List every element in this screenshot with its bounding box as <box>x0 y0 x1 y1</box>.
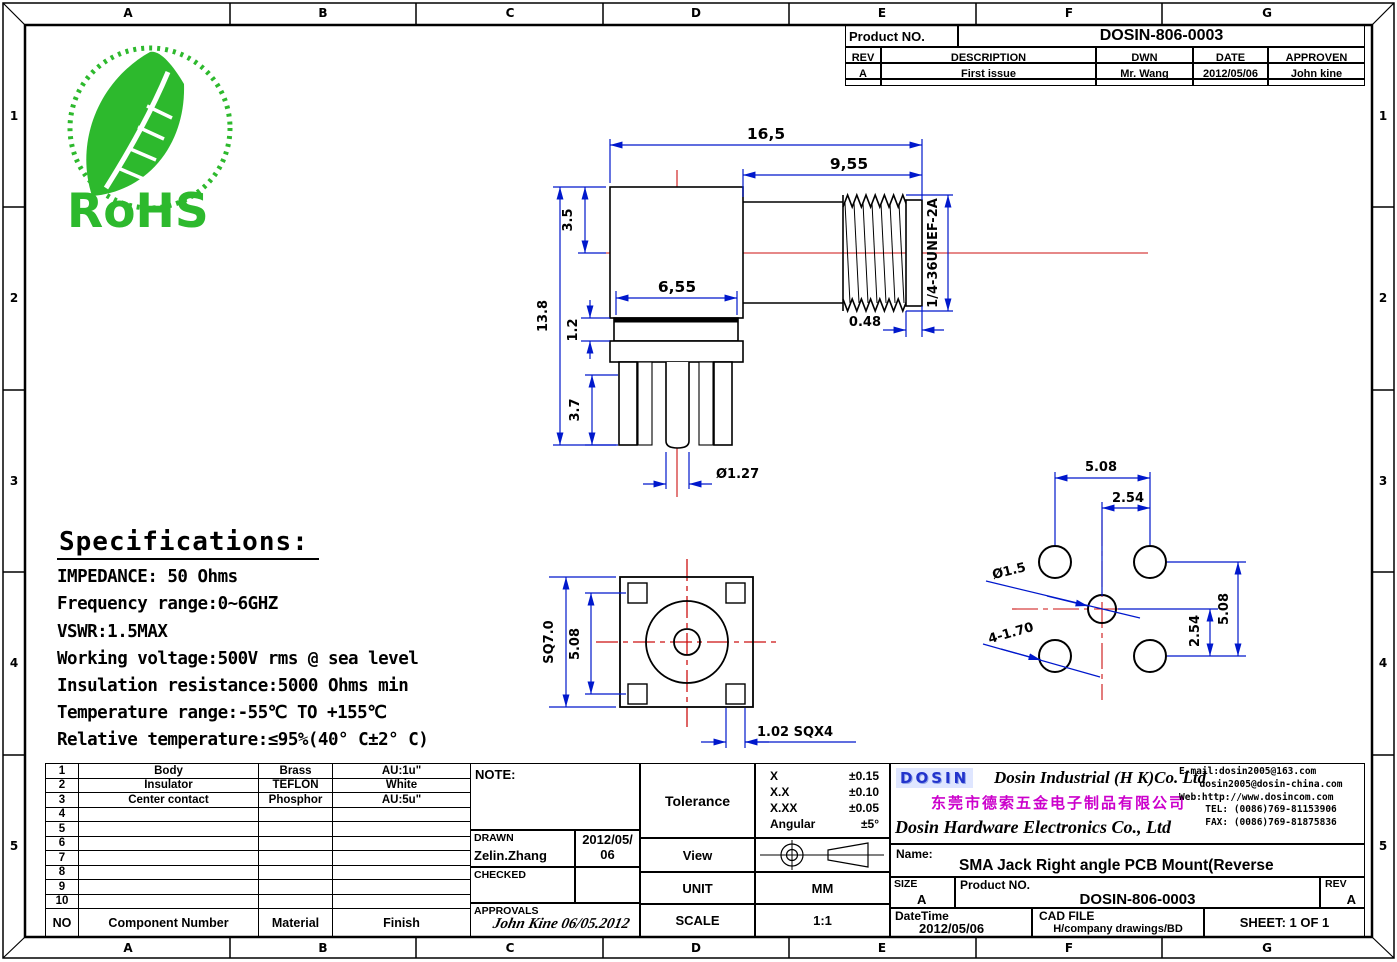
view-label-cell: View <box>640 838 755 872</box>
unit-label-cell: UNIT <box>640 872 755 904</box>
drawn-date-cell: 2012/05/ 06 <box>575 830 640 867</box>
grid-col-top-d: D <box>676 6 716 20</box>
grid-row-left-1: 1 <box>5 109 23 123</box>
size-cell: SIZE A <box>890 877 955 908</box>
note-cell: NOTE: <box>470 763 640 830</box>
drawing-sheet: RoHS <box>0 0 1397 962</box>
grid-col-top-f: F <box>1049 6 1089 20</box>
titleblock-value-description: First issue <box>881 63 1096 79</box>
titleblock-header-date: DATE <box>1193 47 1268 63</box>
grid-col-top-a: A <box>108 6 148 20</box>
grid-col-bottom-e: E <box>862 941 902 955</box>
size-value: A <box>917 892 926 907</box>
scale-value-cell: 1:1 <box>755 904 890 937</box>
titleblock-product-label-cell: Product NO. <box>845 25 958 47</box>
rev-cell: REV A <box>1320 877 1365 908</box>
drawn-cell: DRAWN Zelin.Zhang <box>470 830 575 867</box>
grid-col-bottom-d: D <box>676 941 716 955</box>
rohs-logo: RoHS <box>67 48 230 239</box>
view-symbol-cell <box>755 838 890 872</box>
dosin-logo: DOSIN <box>896 768 973 788</box>
tol-x-label: X <box>770 769 778 783</box>
titleblock-empty-row <box>881 79 1096 86</box>
grid-row-left-2: 2 <box>5 291 23 305</box>
product-no-cell: Product NO. DOSIN-806-0003 <box>955 877 1320 908</box>
sheet-value: SHEET: 1 OF 1 <box>1240 915 1330 930</box>
checked-label: CHECKED <box>474 869 526 881</box>
cad-file-label: CAD FILE <box>1039 909 1094 923</box>
grid-row-right-1: 1 <box>1374 109 1392 123</box>
component-table: 1BodyBrassAU:1u" 2InsulatorTEFLONWhite 3… <box>45 763 471 938</box>
grid-row-right-2: 2 <box>1374 291 1392 305</box>
titleblock-value-rev: A <box>845 63 881 79</box>
titleblock-empty-row <box>1193 79 1268 86</box>
grid-col-bottom-c: C <box>490 941 530 955</box>
checked-date-cell <box>575 867 640 903</box>
dim-fp-hspacing: 5.08 <box>1085 460 1117 475</box>
spec-line-humidity: Relative temperature:≤95%(40° C±2° C) <box>57 730 527 750</box>
table-row: 4 <box>46 807 471 822</box>
dim-overall-height: 13.8 <box>536 300 551 332</box>
scale-label: SCALE <box>675 913 719 928</box>
grid-col-top-g: G <box>1247 6 1287 20</box>
table-row: 7 <box>46 851 471 866</box>
table-row: 3Center contactPhosphorAU:5u" <box>46 793 471 808</box>
dim-fp-center-hole: Ø1.5 <box>991 560 1028 583</box>
grid-col-bottom-f: F <box>1049 941 1089 955</box>
company-name-en2: Dosin Hardware Electronics Co., Ltd <box>895 817 1171 838</box>
titleblock-header-approven: APPROVEN <box>1268 47 1365 63</box>
drawn-name: Zelin.Zhang <box>474 848 547 863</box>
grid-col-bottom-a: A <box>108 941 148 955</box>
tol-xxx-value: ±0.05 <box>849 801 879 815</box>
cad-file-cell: CAD FILE H/company drawings/BD <box>1032 908 1204 937</box>
datetime-value: 2012/05/06 <box>919 921 984 936</box>
spec-line-voltage: Working voltage:500V rms @ sea level <box>57 649 527 669</box>
company-tel: TEL: (0086)769-81153906 <box>1179 804 1363 817</box>
dim-flange-thickness: 1.2 <box>566 318 581 341</box>
specifications-title: Specifications: <box>57 527 319 560</box>
specifications-block: Specifications: IMPEDANCE: 50 Ohms Frequ… <box>57 527 527 750</box>
grid-row-left-3: 3 <box>5 474 23 488</box>
dim-leg-length: 3.7 <box>568 398 583 421</box>
titleblock-empty-row <box>1268 79 1365 86</box>
checked-cell: CHECKED <box>470 867 575 903</box>
tol-xx-label: X.X <box>770 785 789 799</box>
grid-col-top-c: C <box>490 6 530 20</box>
name-row-cell: Name: SMA Jack Right angle PCB Mount(Rev… <box>890 844 1365 877</box>
dim-overall-width: 16,5 <box>747 125 785 143</box>
dim-thread-spec: 1/4-36UNEF-2A <box>926 198 941 308</box>
table-row: 6 <box>46 836 471 851</box>
company-name-cn: 东莞市德索五金电子制品有限公司 <box>931 792 1186 813</box>
dim-leg-pitch: 5.08 <box>568 628 583 660</box>
grid-col-top-e: E <box>862 6 902 20</box>
company-cell: DOSIN Dosin Industrial (H K)Co. Ltd 东莞市德… <box>890 763 1365 844</box>
dim-pin-diameter: Ø1.27 <box>716 467 759 482</box>
unit-label: UNIT <box>682 881 712 896</box>
projection-symbol-icon <box>756 839 888 870</box>
titleblock-product-no: DOSIN-806-0003 <box>1100 27 1224 44</box>
grid-col-top-b: B <box>303 6 343 20</box>
tol-x-value: ±0.15 <box>849 769 879 783</box>
spec-line-vswr: VSWR:1.5MAX <box>57 622 527 642</box>
dim-square-size: SQ7.0 <box>542 620 557 663</box>
tolerance-label-cell: Tolerance <box>640 763 755 838</box>
titleblock-value-date: 2012/05/06 <box>1193 63 1268 79</box>
company-fax: FAX: (0086)769-81875836 <box>1179 817 1363 830</box>
tol-xxx-label: X.XX <box>770 801 797 815</box>
titleblock-product-value-cell: DOSIN-806-0003 <box>958 25 1365 47</box>
unit-value: MM <box>812 881 834 896</box>
titleblock-value-dwn: Mr. Wang <box>1096 63 1193 79</box>
spec-line-insulation: Insulation resistance:5000 Ohms min <box>57 676 527 696</box>
product-no-value: DOSIN-806-0003 <box>956 891 1319 908</box>
scale-value: 1:1 <box>813 913 832 928</box>
dim-fp-vhalf: 2.54 <box>1188 615 1203 647</box>
table-row: 5 <box>46 822 471 837</box>
sheet-cell: SHEET: 1 OF 1 <box>1204 908 1365 937</box>
tolerance-values-cell: X±0.15 X.X±0.10 X.XX±0.05 Angular±5° <box>755 763 890 838</box>
titleblock-empty-row <box>845 79 881 86</box>
company-email-1: E-mail:dosin2005@163.com <box>1179 766 1363 779</box>
titleblock-header-description: DESCRIPTION <box>881 47 1096 63</box>
side-view: 16,5 9,55 3.5 13.8 6,55 1.2 3.7 Ø1.27 1/… <box>536 125 1148 497</box>
part-name: SMA Jack Right angle PCB Mount(Reverse <box>959 857 1274 875</box>
tolerance-label: Tolerance <box>665 793 730 809</box>
grid-col-bottom-g: G <box>1247 941 1287 955</box>
dim-body-width: 6,55 <box>658 278 696 296</box>
grid-row-right-4: 4 <box>1374 656 1392 670</box>
datetime-cell: DateTime 2012/05/06 <box>890 908 1032 937</box>
dim-fp-vspacing: 5.08 <box>1217 593 1232 625</box>
grid-row-right-3: 3 <box>1374 474 1392 488</box>
view-label: View <box>683 848 712 863</box>
titleblock-header-rev: REV <box>845 47 881 63</box>
cad-file-value: H/company drawings/BD <box>1033 923 1203 935</box>
table-row: 10 <box>46 894 471 909</box>
dim-washer: 0.48 <box>849 315 881 330</box>
dim-top-offset: 3.5 <box>561 208 576 231</box>
approvals-cell: APPROVALS John Kine 06/05.2012 <box>470 903 640 937</box>
dim-leg-size: 1.02 SQX4 <box>757 725 833 740</box>
product-no-label: Product NO. <box>960 878 1030 892</box>
grid-row-right-5: 5 <box>1374 839 1392 853</box>
rev-label: REV <box>1325 878 1347 890</box>
approvals-signature: John Kine 06/05.2012 <box>491 916 631 933</box>
company-email-2: dosin2005@dosin-china.com <box>1179 779 1363 792</box>
drawn-date-line2: 06 <box>576 847 639 862</box>
grid-row-left-5: 5 <box>5 839 23 853</box>
company-web: Web:http://www.dosincom.com <box>1179 792 1363 805</box>
note-label: NOTE: <box>475 767 515 782</box>
grid-col-bottom-b: B <box>303 941 343 955</box>
dim-fp-hhalf: 2.54 <box>1112 491 1144 506</box>
tol-angular-value: ±5° <box>861 817 879 831</box>
pcb-footprint: 5.08 2.54 5.08 2.54 Ø1.5 4-1.70 <box>983 460 1246 700</box>
company-contact-block: E-mail:dosin2005@163.com dosin2005@dosin… <box>1179 766 1363 830</box>
table-row: 9 <box>46 880 471 895</box>
table-row: 8 <box>46 865 471 880</box>
rev-value: A <box>1347 892 1356 907</box>
size-label: SIZE <box>894 878 917 890</box>
spec-line-impedance: IMPEDANCE: 50 Ohms <box>57 567 527 587</box>
unit-value-cell: MM <box>755 872 890 904</box>
grid-row-left-4: 4 <box>5 656 23 670</box>
titleblock-product-label: Product NO. <box>849 29 925 44</box>
rohs-label: RoHS <box>67 184 209 239</box>
dim-thread-length: 9,55 <box>830 155 868 173</box>
table-header-row: NOComponent NumberMaterialFinish <box>46 909 471 938</box>
company-name-en1: Dosin Industrial (H K)Co. Ltd <box>994 768 1206 788</box>
spec-line-frequency: Frequency range:0~6GHZ <box>57 594 527 614</box>
tol-xx-value: ±0.10 <box>849 785 879 799</box>
name-label: Name: <box>896 847 933 861</box>
scale-label-cell: SCALE <box>640 904 755 937</box>
titleblock-empty-row <box>1096 79 1193 86</box>
dim-fp-corner-holes: 4-1.70 <box>987 620 1036 647</box>
drawn-label: DRAWN <box>474 832 514 844</box>
drawn-date-line1: 2012/05/ <box>576 832 639 847</box>
spec-line-temperature: Temperature range:-55℃ TO +155℃ <box>57 703 527 723</box>
table-row: 1BodyBrassAU:1u" <box>46 764 471 779</box>
titleblock-header-dwn: DWN <box>1096 47 1193 63</box>
titleblock-value-approven: John kine <box>1268 63 1365 79</box>
tol-angular-label: Angular <box>770 817 815 831</box>
table-row: 2InsulatorTEFLONWhite <box>46 778 471 793</box>
front-view: SQ7.0 5.08 1.02 SQX4 <box>542 559 856 748</box>
